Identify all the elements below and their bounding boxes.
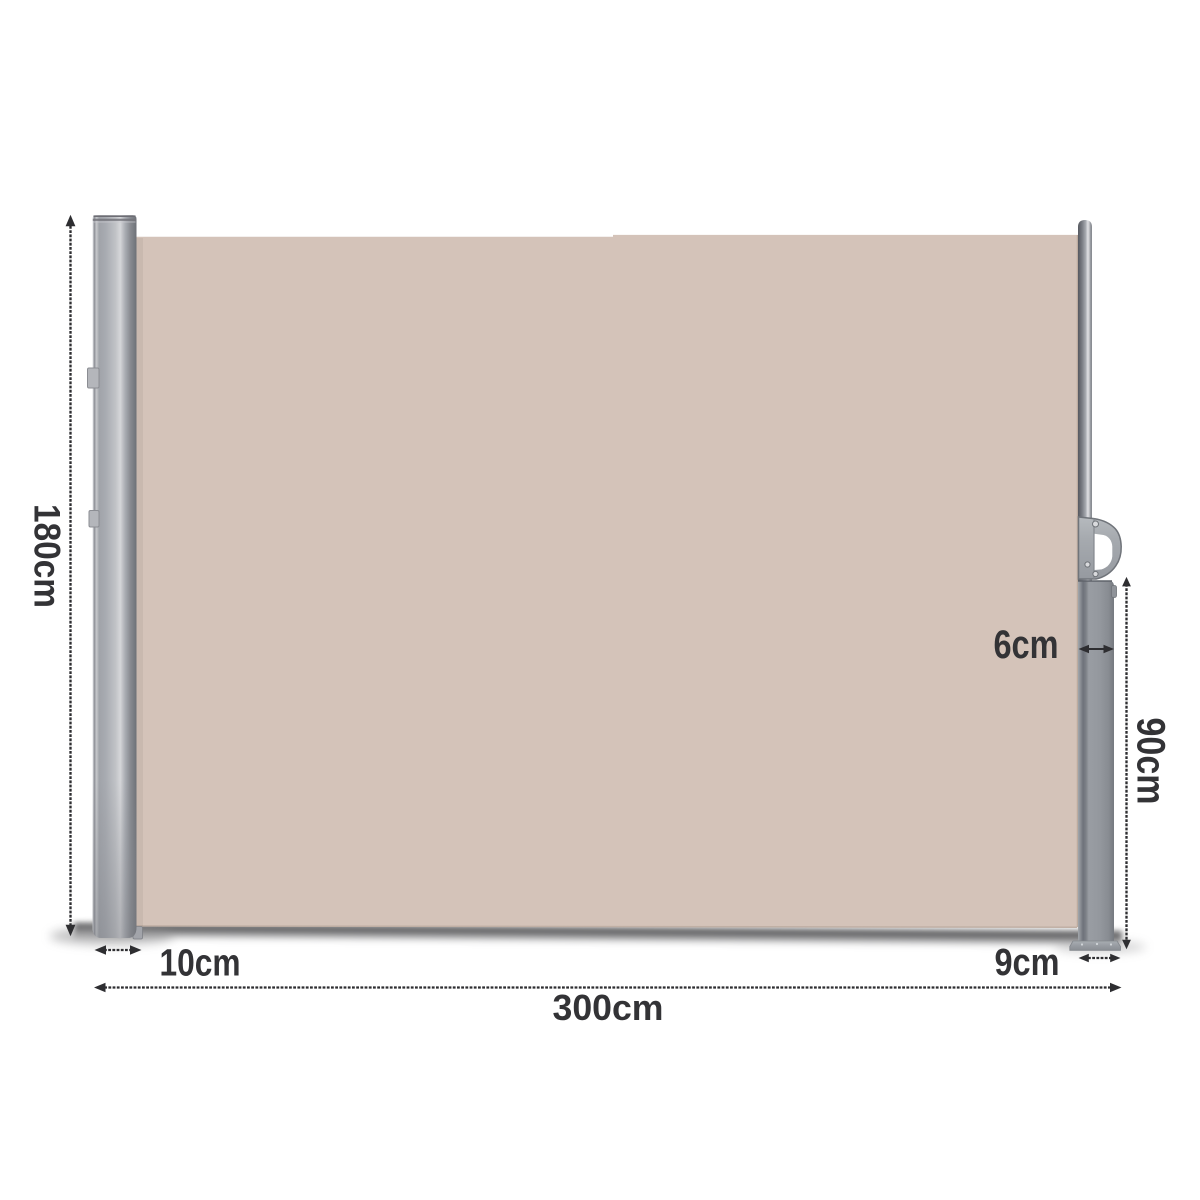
svg-text:10cm: 10cm xyxy=(160,943,241,985)
svg-text:300cm: 300cm xyxy=(553,987,664,1028)
svg-text:90cm: 90cm xyxy=(1129,718,1173,805)
svg-text:9cm: 9cm xyxy=(995,942,1060,984)
svg-text:180cm: 180cm xyxy=(27,504,68,608)
svg-text:6cm: 6cm xyxy=(994,623,1059,667)
